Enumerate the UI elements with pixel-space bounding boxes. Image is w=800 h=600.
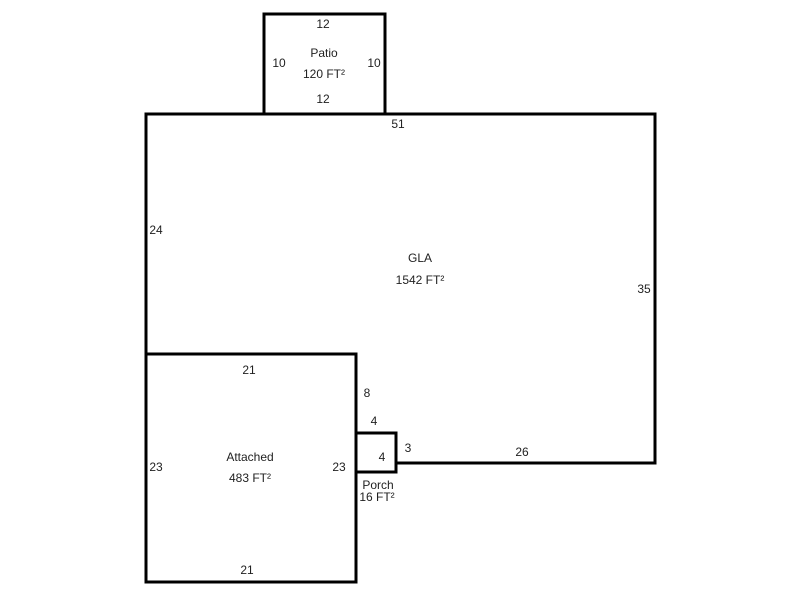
patio-right-dimension: 10 (367, 57, 380, 69)
gla-left-dimension: 24 (149, 224, 162, 236)
floor-plan-sketch: 12 Patio 10 10 120 FT² 12 51 24 GLA 1542… (0, 0, 800, 600)
sketch-lines (0, 0, 800, 600)
gla-bottom-right-dimension: 26 (515, 446, 528, 458)
gla-name-label: GLA (408, 252, 432, 264)
attached-outline (146, 354, 356, 582)
patio-area-label: 120 FT² (303, 68, 345, 80)
porch-area-label: 16 FT² (359, 491, 394, 503)
attached-bottom-dimension: 21 (240, 564, 253, 576)
attached-name-label: Attached (226, 451, 273, 463)
porch-outline (356, 433, 396, 472)
attached-right-dimension: 23 (332, 461, 345, 473)
patio-left-dimension: 10 (272, 57, 285, 69)
gla-top-dimension: 51 (391, 118, 404, 130)
gla-area-label: 1542 FT² (396, 274, 445, 286)
attached-top-dimension: 21 (242, 364, 255, 376)
gla-right-dimension: 35 (637, 283, 650, 295)
porch-inner-dimension: 4 (379, 451, 386, 463)
gla-step-right-dimension: 3 (405, 442, 412, 454)
attached-left-dimension: 23 (149, 461, 162, 473)
patio-bottom-dimension: 12 (316, 93, 329, 105)
gla-step-vertical-dimension: 8 (364, 387, 371, 399)
gla-step-top-dimension: 4 (371, 415, 378, 427)
attached-area-label: 483 FT² (229, 472, 271, 484)
patio-name-label: Patio (310, 47, 337, 59)
patio-top-dimension: 12 (316, 18, 329, 30)
